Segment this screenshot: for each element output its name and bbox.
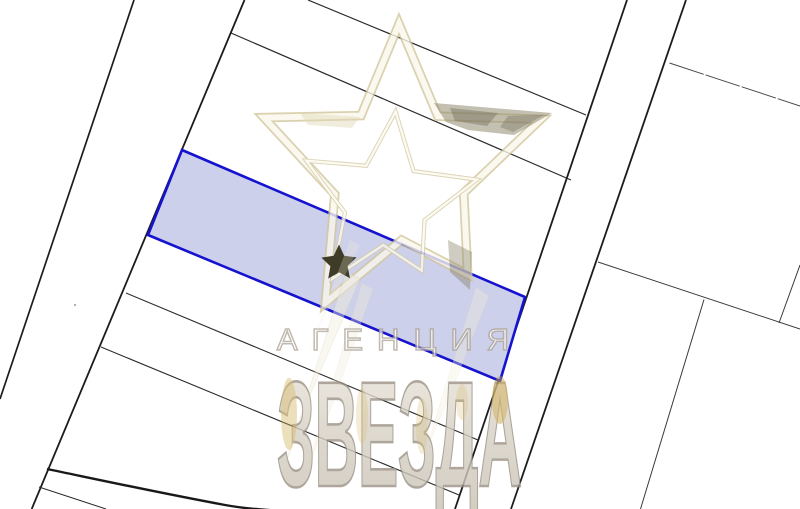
svg-text:ЗВЕЗДА: ЗВЕЗДА xyxy=(277,351,522,509)
